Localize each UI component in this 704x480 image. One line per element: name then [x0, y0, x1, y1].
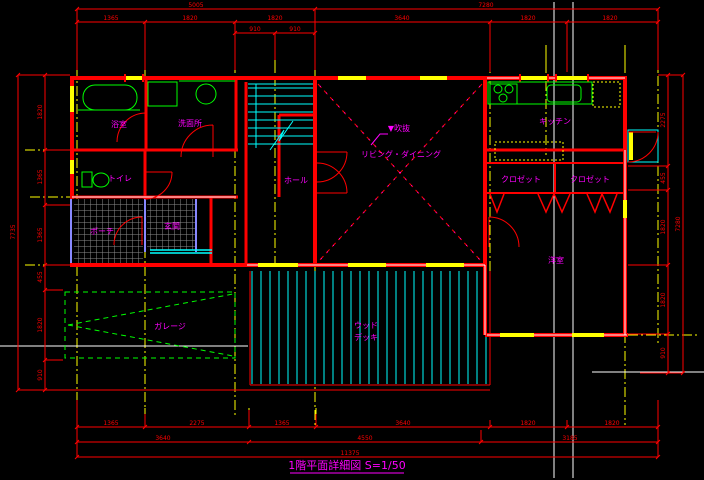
dim-label: 1820	[37, 317, 44, 332]
dim-label: 7735	[10, 224, 17, 239]
room-label-bedroom: 洋室	[548, 255, 564, 265]
room-label-garage: ガレージ	[154, 321, 186, 331]
dim-label: 5005	[188, 2, 203, 9]
room-label-living-dining: リビング・ダイニング	[361, 149, 441, 159]
dim-label: 910	[249, 26, 261, 33]
dim-label: 455	[37, 271, 44, 283]
dim-label: 1365	[37, 169, 44, 184]
dim-label: 1820	[602, 15, 617, 22]
drawing-title: 1階平面詳細図 S=1/50	[288, 458, 405, 472]
room-label-toilet: トイレ	[108, 174, 132, 183]
dim-label: 1820	[267, 15, 282, 22]
room-label-bath: 浴室	[111, 119, 127, 129]
dim-label: 7280	[478, 2, 493, 9]
dim-label: 3640	[394, 15, 409, 22]
room-label-washroom: 洗面所	[178, 118, 202, 128]
dim-label: 1820	[660, 219, 667, 234]
room-label-closet-right: クロゼット	[570, 174, 610, 184]
room-label-hall: ホール	[284, 176, 308, 185]
void-marker-label: ▼吹抜	[388, 123, 410, 133]
deck-label-line1: ウッド	[354, 321, 378, 330]
dim-label: 1820	[604, 420, 619, 427]
dim-label: 11375	[340, 450, 359, 457]
deck-label-line2: デッキ	[354, 332, 378, 342]
dim-label: 1820	[520, 15, 535, 22]
room-label-kitchen: キッチン	[539, 117, 571, 126]
dim-label: 1820	[660, 292, 667, 307]
dim-label: 3640	[155, 435, 170, 442]
dim-label: 2275	[189, 420, 204, 427]
dim-label: 1365	[37, 227, 44, 242]
dim-label: 3185	[562, 435, 577, 442]
title-block: 1階平面詳細図 S=1/50	[288, 458, 405, 473]
dim-label: 1365	[103, 420, 118, 427]
dim-label: 3640	[395, 420, 410, 427]
dim-label: 2275	[660, 112, 667, 127]
dim-label: 455	[660, 172, 667, 184]
dim-label: 1365	[103, 15, 118, 22]
dim-label: 1365	[274, 420, 289, 427]
cad-floorplan-canvas[interactable]: 5005 7280 1365 1820 1820 3640 1820 1820 …	[0, 0, 704, 480]
dim-label: 910	[660, 347, 667, 359]
room-label-porch: ポーチ	[90, 227, 114, 236]
room-label-closet-left: クロゼット	[501, 174, 541, 184]
dim-label: 910	[37, 369, 44, 381]
dim-label: 1820	[37, 104, 44, 119]
dim-label: 910	[289, 26, 301, 33]
dim-label: 1820	[182, 15, 197, 22]
floorplan-drawing: 5005 7280 1365 1820 1820 3640 1820 1820 …	[0, 0, 704, 480]
dim-label: 4550	[357, 435, 372, 442]
dim-label: 7280	[675, 216, 682, 231]
dim-label: 1820	[520, 420, 535, 427]
room-label-entrance: 玄関	[164, 221, 180, 231]
